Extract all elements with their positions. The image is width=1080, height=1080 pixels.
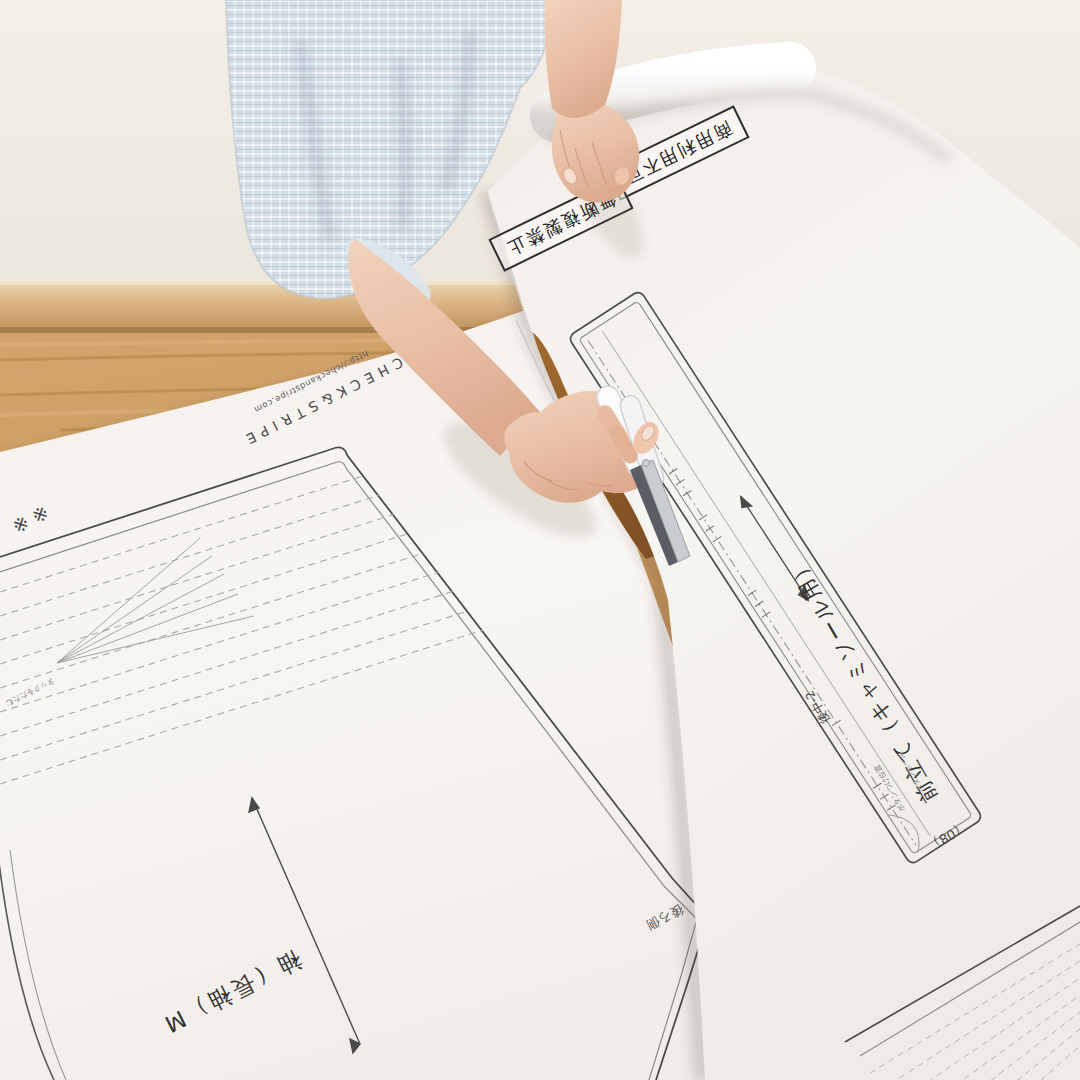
scissors-pivot <box>643 460 650 467</box>
foreground-person <box>0 0 1080 1080</box>
photo-sewing-pattern-cutting: CHECK&STRIPE http://checkandstripe.com 商… <box>0 0 1080 1080</box>
right-arm <box>545 0 639 202</box>
